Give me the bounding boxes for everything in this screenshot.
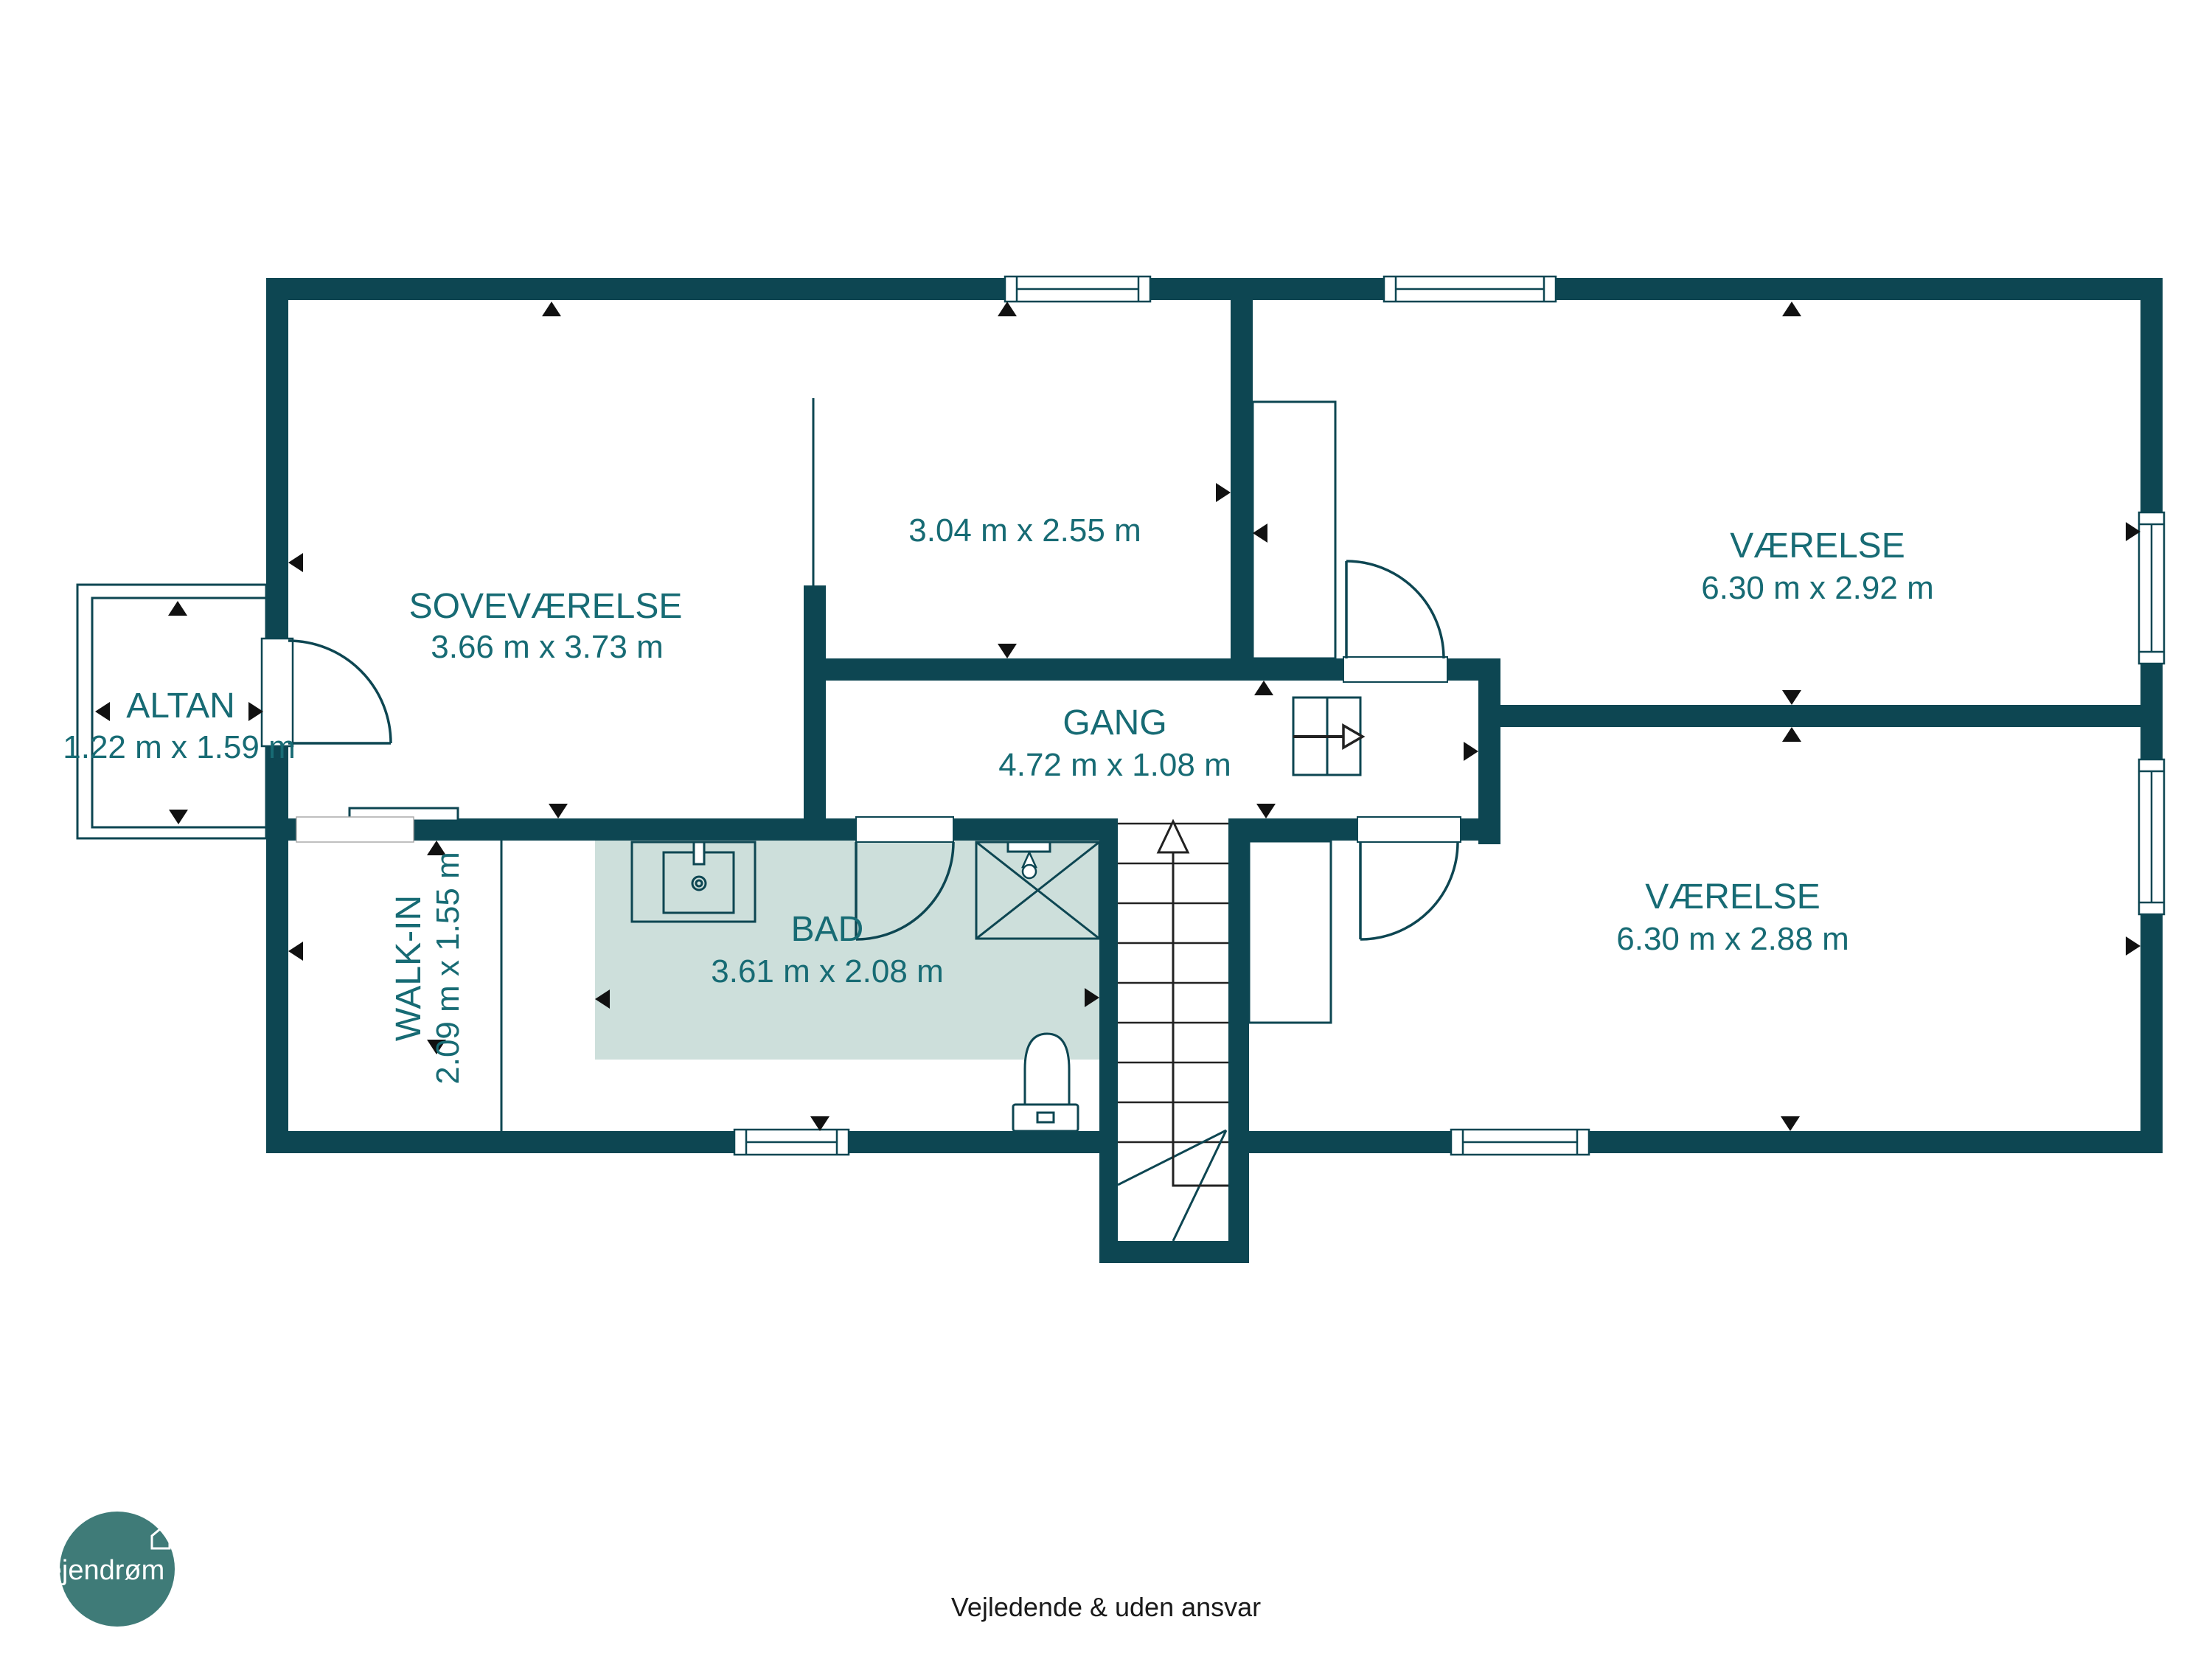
room-dims-walkin: 2.09 m x 1.55 m (430, 852, 466, 1084)
disclaimer-text: Vejledende & uden ansvar (951, 1592, 1261, 1622)
room-door-opening (1357, 817, 1461, 842)
room-label-vaerelse-bottom: VÆRELSE (1645, 877, 1820, 917)
room-label-vaerelse-top: VÆRELSE (1730, 526, 1905, 566)
room-door-opening (1343, 657, 1447, 682)
room-label-sovevaerelse: SOVEVÆRELSE (409, 587, 683, 626)
room-label-gang: GANG (1062, 703, 1166, 742)
window (2139, 759, 2164, 914)
room-dims-small-room: 3.04 m x 2.55 m (908, 512, 1141, 549)
room-dims-altan: 1.22 m x 1.59 m (63, 729, 295, 765)
window (734, 1130, 849, 1155)
room-dims-sovevaerelse: 3.66 m x 3.73 m (431, 629, 663, 665)
stair-direction-symbol (1293, 698, 1363, 775)
room-dims-gang: 4.72 m x 1.08 m (998, 747, 1231, 783)
room-label-altan: ALTAN (126, 686, 235, 726)
floor-plan: SOVEVÆRELSE 3.66 m x 3.73 m 3.04 m x 2.5… (0, 0, 2212, 1659)
room-dims-bad: 3.61 m x 2.08 m (711, 953, 943, 990)
window (1005, 276, 1150, 302)
window (1384, 276, 1556, 302)
window (2139, 512, 2164, 664)
room-dims-vaerelse-bottom: 6.30 m x 2.88 m (1616, 921, 1848, 957)
room-dims-vaerelse-top: 6.30 m x 2.92 m (1701, 570, 1933, 606)
room-label-bad: BAD (791, 910, 864, 949)
bath-door-opening (856, 817, 953, 842)
window (1451, 1130, 1589, 1155)
walkin-opening (296, 817, 414, 842)
room-label-walkin: WALK-IN (389, 895, 428, 1041)
logo-text: ejendrøm (46, 1555, 165, 1586)
